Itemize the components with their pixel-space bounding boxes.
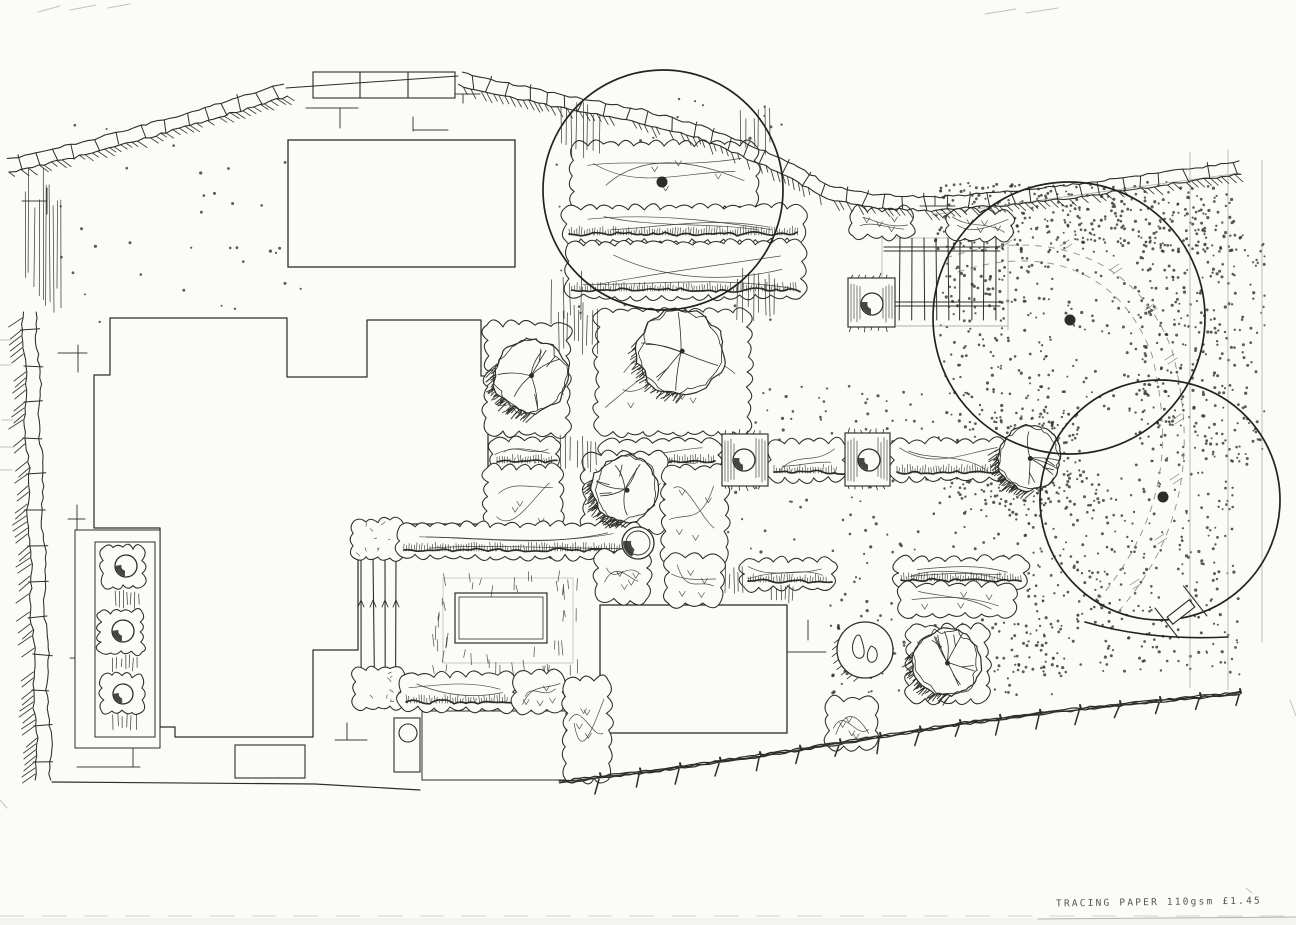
deck-grating: [882, 238, 1008, 326]
formal-lawn: [433, 571, 578, 677]
bench-symbol: [1155, 586, 1207, 638]
boulder-feature: [832, 622, 893, 681]
tracing-paper-sheet: TRACING PAPER 110gsm £1.45: [0, 0, 1296, 925]
bottom-boundary-line: [52, 782, 420, 790]
garden-bench: [1155, 586, 1207, 638]
water-butt: [394, 718, 420, 772]
garden-plan-drawing: [0, 0, 1296, 925]
boundary-fence-left: [9, 312, 53, 783]
